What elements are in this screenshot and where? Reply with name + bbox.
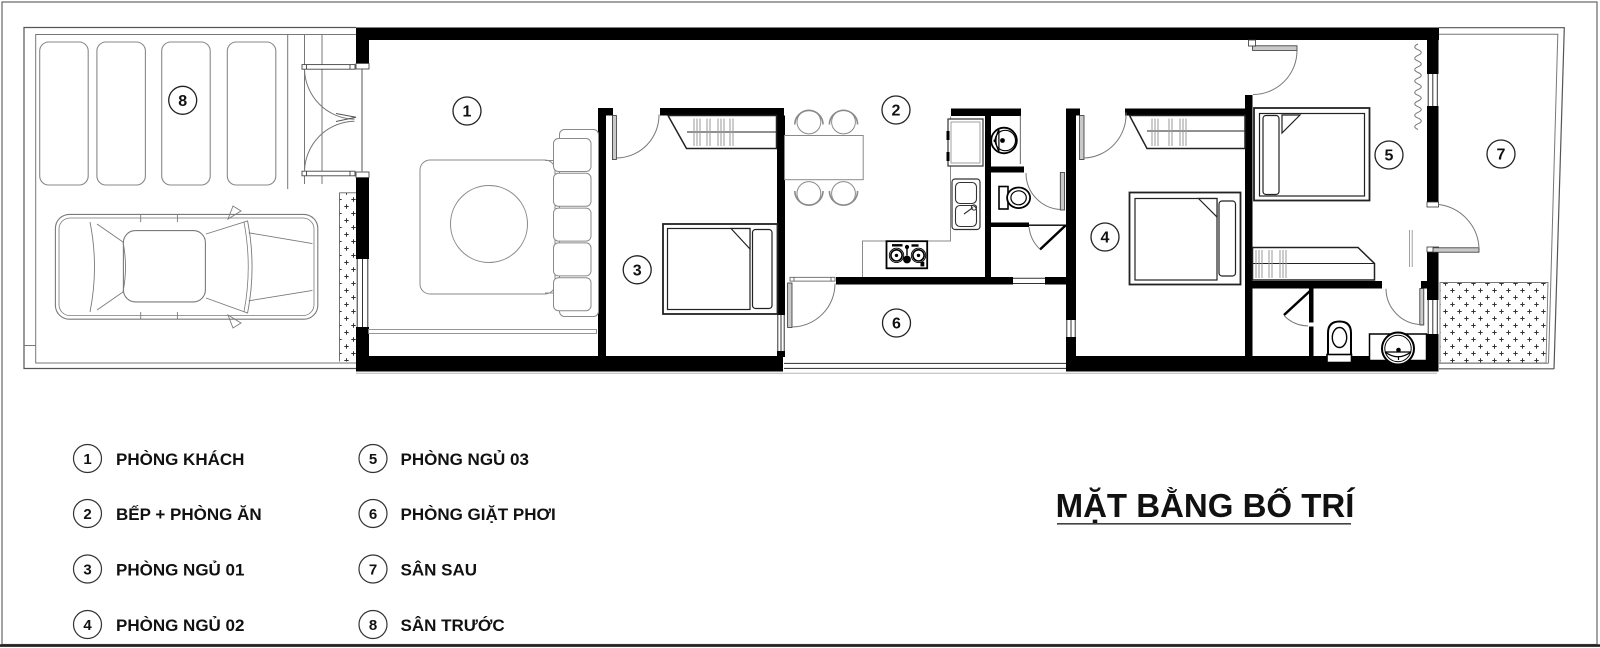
svg-text:5: 5 (369, 451, 377, 468)
svg-text:4: 4 (83, 617, 92, 634)
svg-text:8: 8 (178, 93, 187, 110)
svg-text:SÂN TRƯỚC: SÂN TRƯỚC (401, 616, 505, 635)
svg-text:6: 6 (369, 506, 377, 523)
svg-text:PHÒNG KHÁCH: PHÒNG KHÁCH (116, 450, 244, 469)
svg-text:6: 6 (892, 316, 901, 333)
svg-text:PHÒNG NGỦ 03: PHÒNG NGỦ 03 (401, 450, 529, 469)
svg-text:7: 7 (369, 561, 377, 578)
svg-text:3: 3 (83, 561, 91, 578)
svg-text:4: 4 (1101, 230, 1110, 247)
svg-text:PHÒNG GIẶT PHƠI: PHÒNG GIẶT PHƠI (401, 505, 556, 524)
svg-text:7: 7 (1497, 147, 1506, 164)
svg-text:2: 2 (892, 103, 901, 120)
svg-text:PHÒNG NGỦ 01: PHÒNG NGỦ 01 (116, 560, 244, 579)
svg-text:5: 5 (1385, 148, 1394, 165)
svg-text:MẶT BẰNG BỐ TRÍ: MẶT BẰNG BỐ TRÍ (1056, 486, 1356, 524)
svg-text:2: 2 (83, 506, 91, 523)
svg-text:PHÒNG NGỦ 02: PHÒNG NGỦ 02 (116, 616, 244, 635)
svg-text:8: 8 (369, 617, 377, 634)
svg-text:3: 3 (633, 262, 642, 279)
svg-text:1: 1 (83, 451, 91, 468)
svg-text:BẾP + PHÒNG ĂN: BẾP + PHÒNG ĂN (116, 505, 262, 524)
svg-text:1: 1 (463, 104, 472, 121)
svg-text:SÂN SAU: SÂN SAU (401, 560, 478, 579)
